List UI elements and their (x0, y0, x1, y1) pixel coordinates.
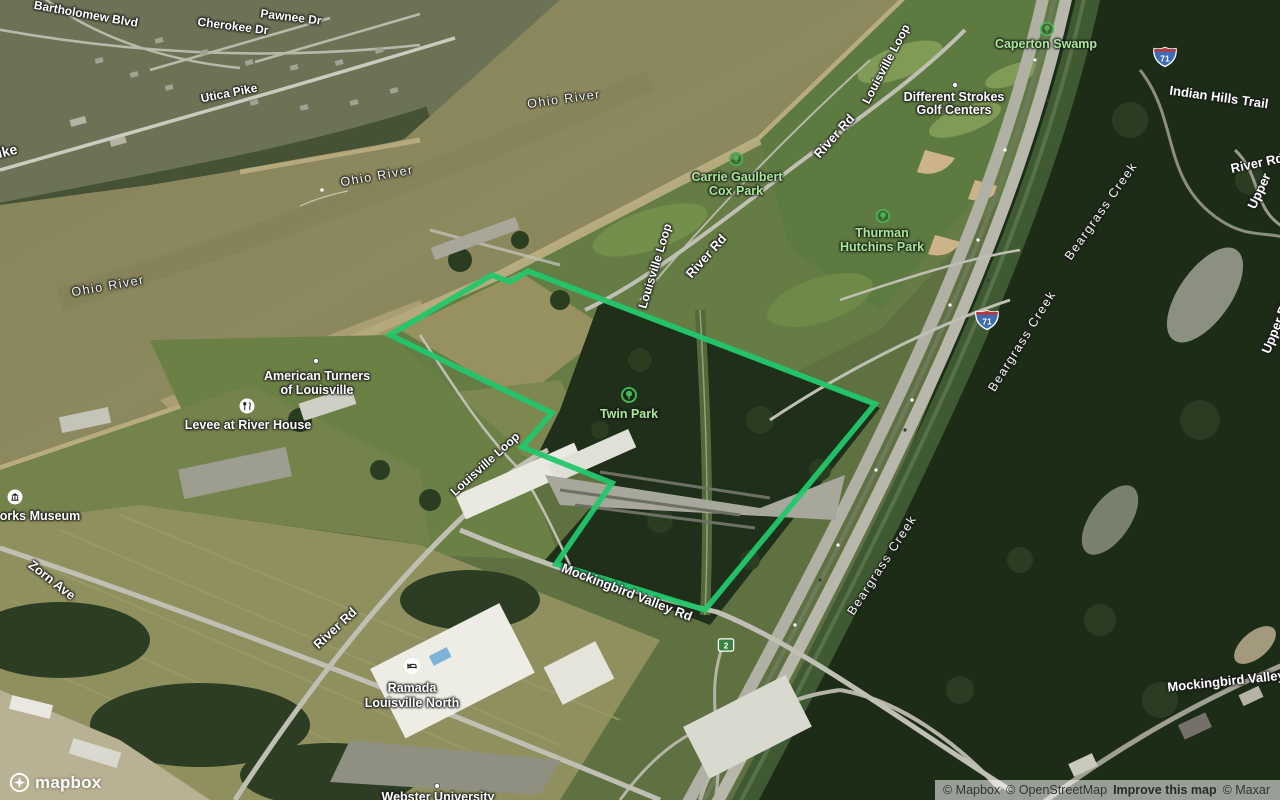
svg-text:2: 2 (724, 640, 729, 650)
improve-this-map-link[interactable]: Improve this map (1113, 783, 1217, 797)
interstate-71-shield-2: 71 (975, 310, 999, 331)
park-label-cox-park-line2: Cox Park (709, 184, 763, 198)
poi-dot-icon-webster (433, 782, 441, 790)
park-label-twin-park: Twin Park (600, 407, 658, 421)
map-canvas[interactable]: Bartholomew Blvd Cherokee Dr Pawnee Dr U… (0, 0, 1280, 800)
poi-label-ramada-line1: Ramada (388, 681, 437, 695)
attribution-osm-link[interactable]: © OpenStreetMap (1006, 783, 1107, 797)
route-2-shield: 2 (718, 638, 735, 652)
interstate-71-shield-1: 71 (1153, 47, 1177, 68)
svg-text:71: 71 (982, 317, 992, 327)
park-label-thurman-line2: Hutchins Park (840, 240, 924, 254)
attribution-mapbox-link[interactable]: © Mapbox (943, 783, 1000, 797)
poi-dot-icon-turners (312, 357, 320, 365)
park-tree-icon-twin (621, 387, 638, 404)
park-tree-icon-caperton (1040, 22, 1055, 37)
svg-text:71: 71 (1160, 54, 1170, 64)
lodging-icon-ramada (404, 658, 421, 675)
mapbox-logo-icon (8, 771, 31, 794)
museum-icon (7, 489, 23, 505)
poi-label-golf-line2: Golf Centers (916, 103, 991, 117)
park-label-cox-park-line1: Carrie Gaulbert (691, 170, 782, 184)
poi-dot-icon-golf (951, 81, 959, 89)
mapbox-logo[interactable]: mapbox (8, 771, 101, 794)
park-tree-icon-cox (729, 152, 744, 167)
poi-label-webster-clipped: Webster University (381, 790, 494, 800)
park-tree-icon-thurman (876, 209, 891, 224)
poi-label-turners-line1: American Turners (264, 369, 370, 383)
poi-label-turners-line2: of Louisville (281, 383, 354, 397)
poi-label-museum-clipped: orks Museum (0, 509, 80, 523)
poi-label-ramada-line2: Louisville North (365, 696, 459, 710)
mapbox-logo-text: mapbox (35, 773, 101, 793)
poi-label-golf-line1: Different Strokes (904, 90, 1005, 104)
restaurant-icon-levee (239, 398, 255, 414)
attribution-maxar-link[interactable]: © Maxar (1223, 783, 1270, 797)
park-label-caperton-swamp: Caperton Swamp (995, 37, 1097, 51)
park-label-thurman-line1: Thurman (855, 226, 908, 240)
satellite-basemap (0, 0, 1280, 800)
attribution-bar: © Mapbox © OpenStreetMap Improve this ma… (935, 780, 1280, 800)
poi-label-levee: Levee at River House (185, 418, 311, 432)
